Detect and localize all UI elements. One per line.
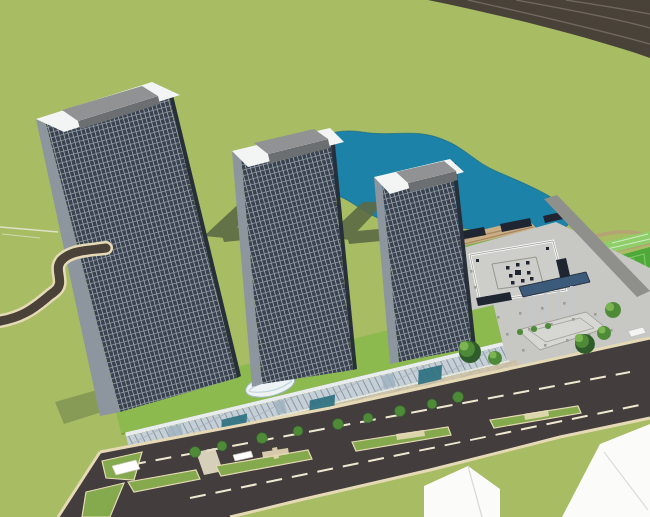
site-plan-render [0,0,650,517]
tree-cluster [605,302,621,318]
render-viewport [0,0,650,517]
